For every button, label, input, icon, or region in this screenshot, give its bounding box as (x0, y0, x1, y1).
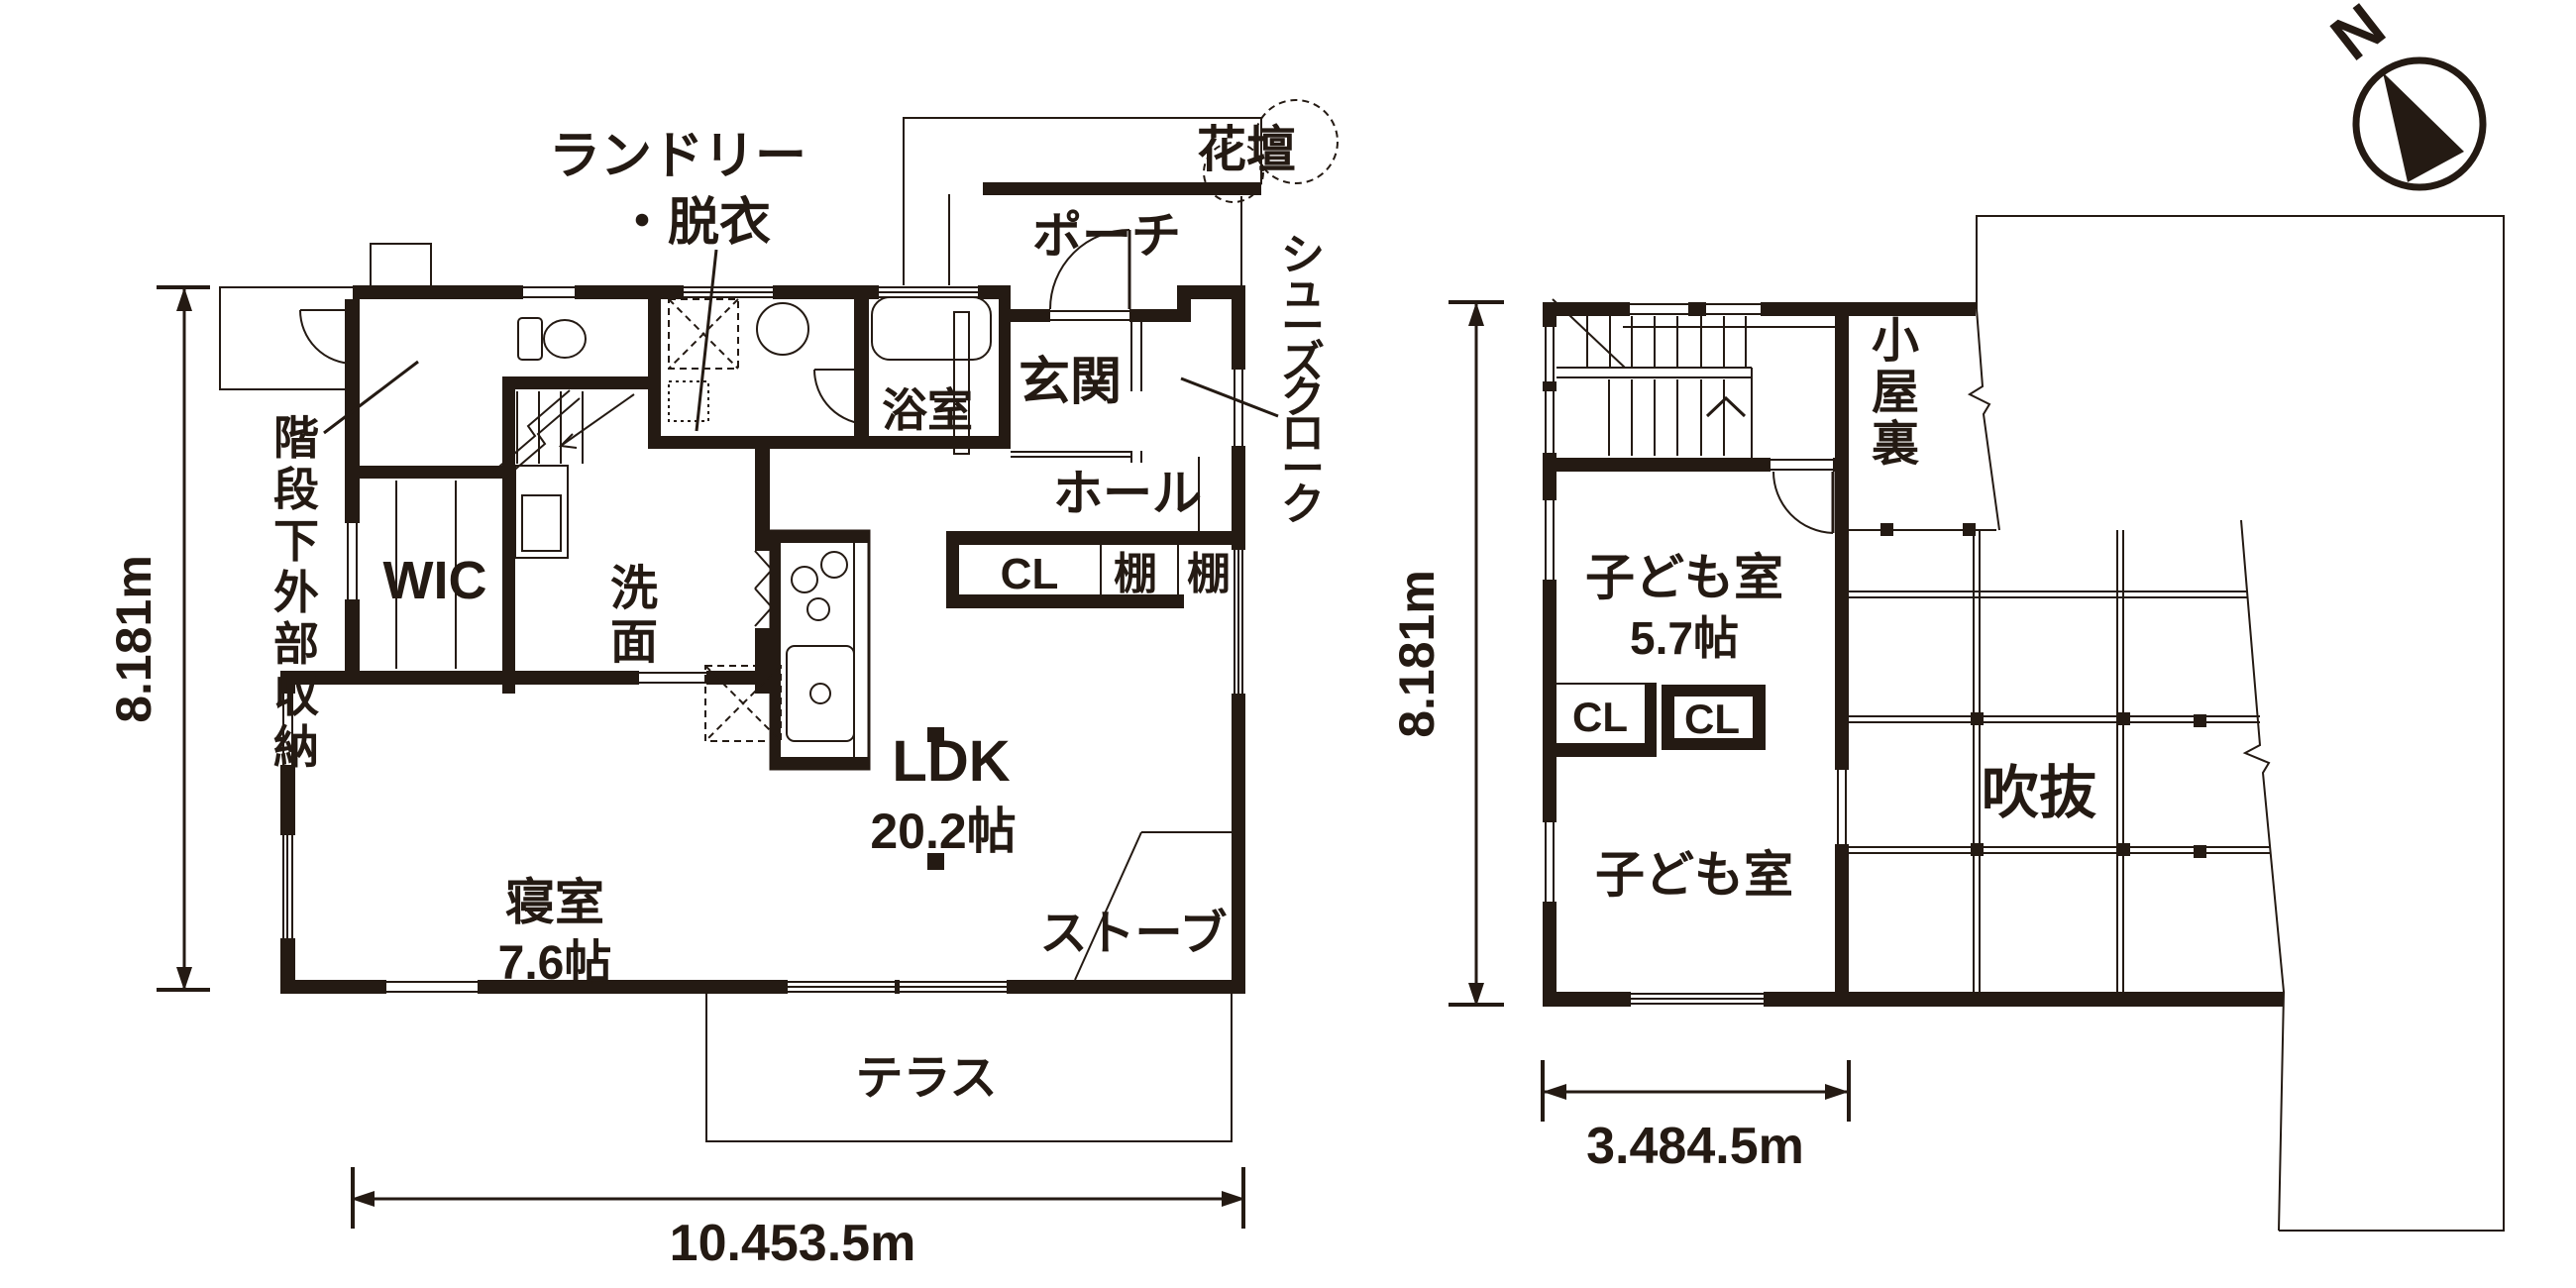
flowerbed-wall (983, 182, 1261, 195)
child-room1-label: 子ども室 (1585, 550, 1783, 605)
1f-height-dimension (157, 285, 210, 992)
floor-plan-page: N ランドリー ・脱衣 花壇 ポーチ 玄関 浴室 ホール シューズクローク CL… (0, 0, 2576, 1288)
bedroom-size-label: 7.6帖 (498, 937, 612, 990)
kitchen-island-icon (771, 531, 869, 769)
toilet-icon (508, 318, 586, 383)
flowerbed-label: 花壇 (1197, 122, 1296, 177)
ldk-label: LDK (892, 729, 1010, 794)
1f-width-dim-label: 10.453.5m (670, 1215, 916, 1272)
void-label: 吹抜 (1982, 761, 2096, 825)
stove-label: ストーブ (1039, 907, 1227, 960)
north-label: N (2317, 0, 2398, 74)
label-leader-lines-1f (324, 250, 1278, 433)
vent-box (371, 244, 431, 287)
ldk-size-label: 20.2帖 (870, 804, 1016, 859)
shelf2-label: 棚 (1187, 550, 1231, 598)
child-room2-label: 子ども室 (1595, 847, 1793, 903)
1f-height-dim-label: 8.181m (106, 555, 161, 723)
washbasin-icon (515, 466, 568, 558)
closet-label: CL (1001, 550, 1059, 598)
laundry-label-line2: ・脱衣 (616, 194, 771, 252)
2f-child-room-door-icon (1771, 458, 1833, 533)
closet2-label: CL (1684, 696, 1740, 742)
2f-height-dim-label: 8.181m (1389, 570, 1445, 738)
north-compass-icon: N (2317, 0, 2483, 187)
laundry-sink-icon (757, 303, 808, 355)
wic-label: WIC (383, 551, 487, 610)
hall-label: ホール (1053, 466, 1202, 521)
under-stair-storage-box (220, 287, 354, 389)
porch-label: ポーチ (1032, 208, 1181, 264)
2f-height-dimension (1449, 300, 1504, 1007)
entrance-label: 玄関 (1019, 354, 1122, 411)
shoe-cloak-label: シューズクローク (1281, 231, 1325, 529)
washroom-label: 洗面 (610, 563, 658, 669)
shelf1-label: 棚 (1114, 550, 1157, 598)
pantry-bifold-door-icon (753, 551, 772, 628)
bath-label: 浴室 (882, 384, 973, 436)
bedroom-label: 寝室 (505, 875, 604, 930)
closet1-label: CL (1572, 694, 1628, 740)
under-stair-storage-label: 階段下外部収納 (273, 412, 319, 773)
laundry-label-line1: ランドリー (549, 128, 806, 185)
2f-width-dimension (1541, 1060, 1851, 1122)
terrace-label: テラス (855, 1052, 997, 1105)
2f-stairs-icon (1553, 299, 1835, 458)
child-room1-size-label: 5.7帖 (1630, 612, 1739, 664)
2f-width-dim-label: 3.484.5m (1586, 1118, 1804, 1175)
attic-label: 小屋裏 (1872, 315, 1919, 471)
floor-plan-drawing: N ランドリー ・脱衣 花壇 ポーチ 玄関 浴室 ホール シューズクローク CL… (0, 0, 2576, 1288)
